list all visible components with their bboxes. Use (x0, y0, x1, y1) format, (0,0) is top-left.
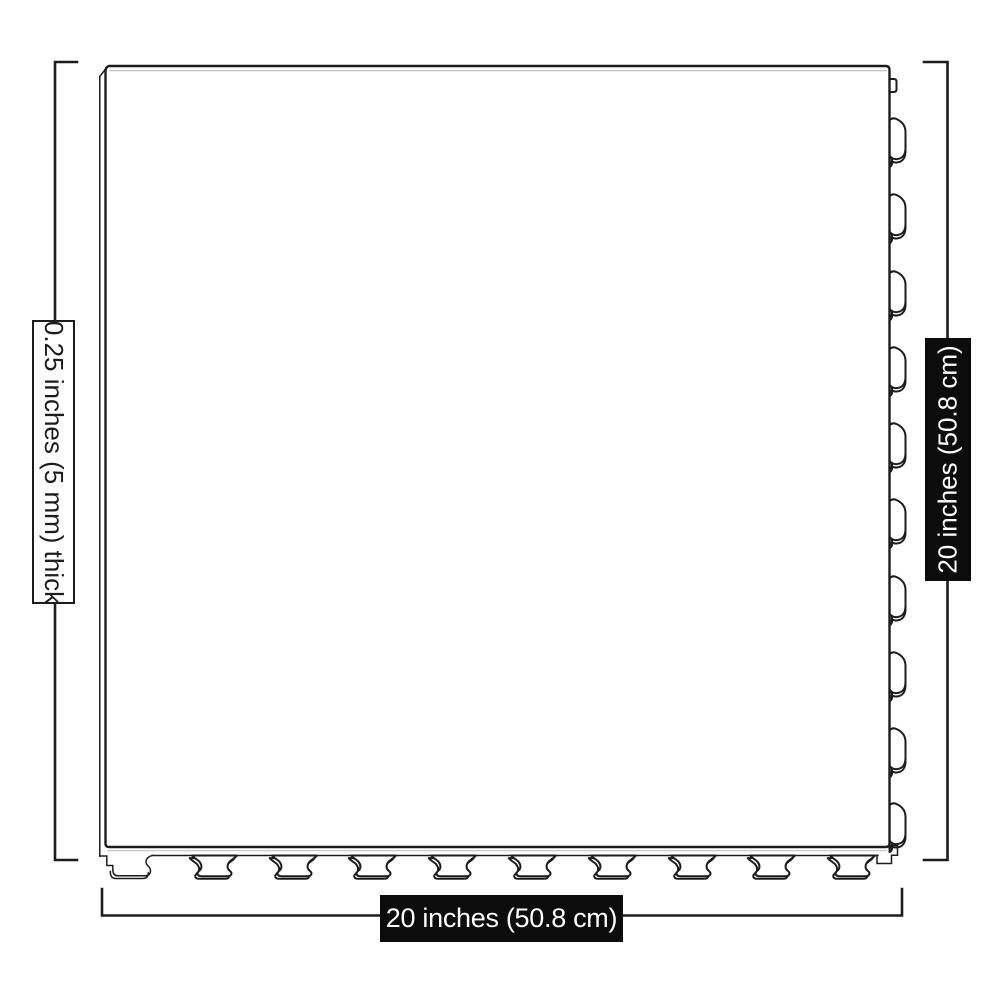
height-dimension-text: 20 inches (50.8 cm) (933, 345, 964, 573)
thickness-dimension-text: 0.25 inches (5 mm) thick (38, 320, 69, 603)
right-edge-tabs (890, 79, 906, 852)
bottom-left-step-tab (100, 855, 153, 878)
tile-outline (100, 66, 906, 879)
tile-face (106, 66, 890, 847)
bottom-edge-tabs (190, 856, 875, 879)
width-dimension-label: 20 inches (50.8 cm) (380, 895, 623, 942)
width-dimension-text: 20 inches (50.8 cm) (386, 903, 617, 934)
tile-line-art (0, 0, 1000, 1000)
tile-dimension-diagram: 0.25 inches (5 mm) thick 20 inches (50.8… (0, 0, 1000, 1000)
height-dimension-label: 20 inches (50.8 cm) (925, 338, 971, 581)
thickness-dimension-label: 0.25 inches (5 mm) thick (32, 320, 75, 604)
